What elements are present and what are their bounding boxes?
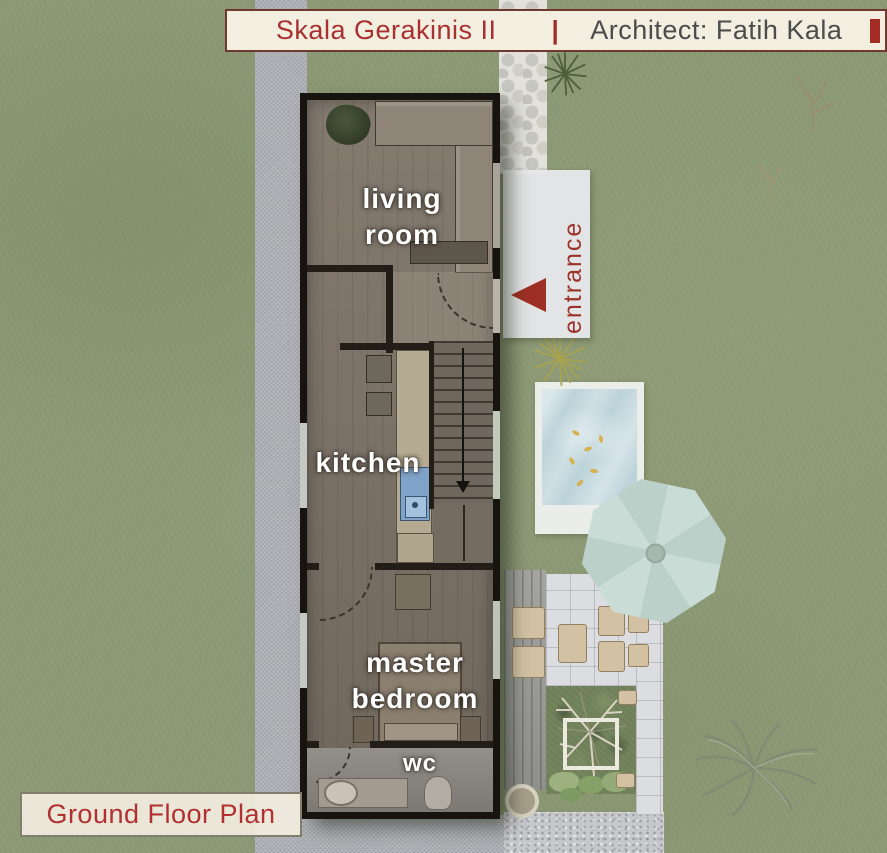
fish-icon xyxy=(590,468,599,473)
planter-box xyxy=(616,773,635,788)
stair-arrow-down-icon xyxy=(456,481,470,493)
planter-box xyxy=(618,690,637,705)
kitchen-appliance xyxy=(366,355,392,383)
kitchen-appliance xyxy=(366,392,392,416)
lounge-chair xyxy=(512,646,545,678)
fish-icon xyxy=(568,457,575,466)
stair-direction-line xyxy=(462,348,464,483)
kitchen-label: kitchen xyxy=(308,445,428,481)
project-title: Skala Gerakinis II xyxy=(227,15,545,46)
fish-icon xyxy=(572,429,581,436)
gravel-path xyxy=(504,812,664,853)
interior-wall xyxy=(375,563,493,570)
interior-wall xyxy=(386,265,393,353)
pool-water xyxy=(542,389,637,505)
bed-pillows xyxy=(384,723,458,741)
yucca-plant-icon xyxy=(531,330,589,388)
landing-divider xyxy=(463,505,465,561)
entrance-sign: entrance xyxy=(503,170,590,338)
nightstand xyxy=(353,716,374,743)
round-pot xyxy=(505,784,539,818)
fish-icon xyxy=(584,446,593,452)
sofa xyxy=(375,101,493,146)
bedroom-desk xyxy=(395,574,431,610)
tree-planter-frame xyxy=(563,718,619,770)
wc-sink xyxy=(324,780,358,806)
architect-credit: Architect: Fatih Kala xyxy=(565,15,868,46)
interior-wall xyxy=(307,563,319,570)
coffee-table xyxy=(558,624,587,663)
plan-title-label: Ground Floor Plan xyxy=(20,792,302,837)
interior-wall xyxy=(370,741,493,748)
fish-icon xyxy=(598,435,603,444)
bush xyxy=(560,788,582,802)
kitchen-cabinet xyxy=(397,533,434,563)
patio-chair xyxy=(628,644,649,667)
window xyxy=(300,613,307,688)
site-plan-canvas: entrance xyxy=(0,0,887,853)
header-end-accent xyxy=(870,19,880,43)
house-building: living room kitchen xyxy=(300,93,500,819)
sink-drain xyxy=(412,502,418,508)
title-divider: | xyxy=(545,15,564,46)
spiky-plant-icon xyxy=(542,51,588,97)
twig-icon xyxy=(782,75,844,137)
palm-plant-icon xyxy=(692,716,824,821)
lounge-chair xyxy=(512,607,545,639)
entry-door-leaf xyxy=(493,279,500,333)
interior-wall xyxy=(307,265,387,272)
title-bar: Skala Gerakinis II | Architect: Fatih Ka… xyxy=(225,9,887,52)
master-bedroom-label: master bedroom xyxy=(330,645,500,718)
fish-icon xyxy=(576,479,584,487)
entrance-label: entrance xyxy=(559,170,588,334)
window xyxy=(493,411,500,499)
living-room-label: living room xyxy=(322,181,482,254)
interior-wall xyxy=(340,343,436,350)
window xyxy=(493,163,500,248)
entrance-arrow-icon xyxy=(511,278,546,312)
twig-icon xyxy=(748,162,796,210)
window xyxy=(300,423,307,508)
toilet xyxy=(424,776,452,810)
wc-label: wc xyxy=(385,748,455,779)
nightstand xyxy=(460,716,481,743)
patio-chair xyxy=(598,641,625,672)
plan-title-text: Ground Floor Plan xyxy=(46,799,275,830)
